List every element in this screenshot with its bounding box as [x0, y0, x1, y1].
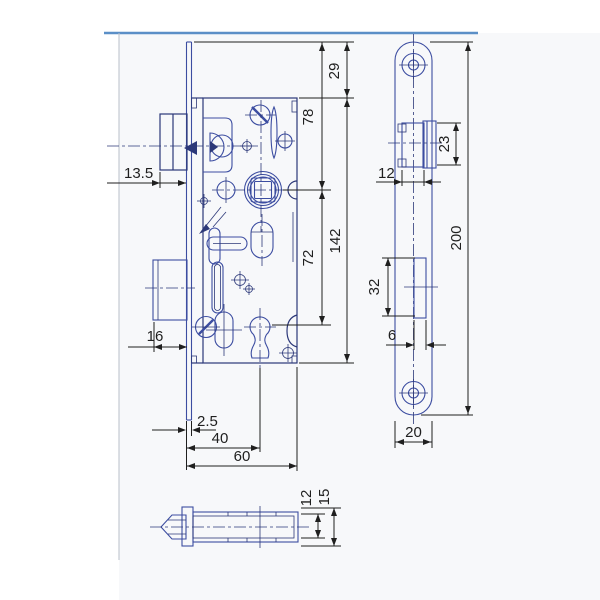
dim-label-top-margin: 29	[326, 63, 343, 80]
dim-label-case-thickness: 12	[298, 490, 315, 507]
dim-label-plate-width: 20	[405, 424, 422, 441]
dim-label-plate-length: 200	[448, 225, 465, 250]
technical-drawing-page: 13.5 16 2.5 40	[0, 0, 600, 600]
mortise-lock-drawing: 13.5 16 2.5 40	[0, 0, 600, 600]
dim-label-latch-height: 23	[436, 136, 453, 153]
dim-label-follower-to-key: 72	[300, 250, 317, 267]
dim-label-latch-width: 12	[378, 165, 395, 182]
dim-label-case-depth: 60	[234, 448, 251, 465]
dim-label-plate-thickness: 2.5	[197, 413, 218, 430]
dim-label-slot-height: 32	[366, 279, 383, 296]
dim-label-case-height: 142	[327, 228, 344, 253]
dim-label-follower-height: 78	[300, 109, 317, 126]
dim-label-slot-width: 6	[388, 327, 396, 344]
dim-label-backset: 40	[212, 430, 229, 447]
dim-label-deadbolt-protrusion: 16	[147, 328, 164, 345]
dim-label-plate-height: 15	[316, 489, 333, 506]
dim-label-latch-protrusion: 13.5	[124, 165, 153, 182]
